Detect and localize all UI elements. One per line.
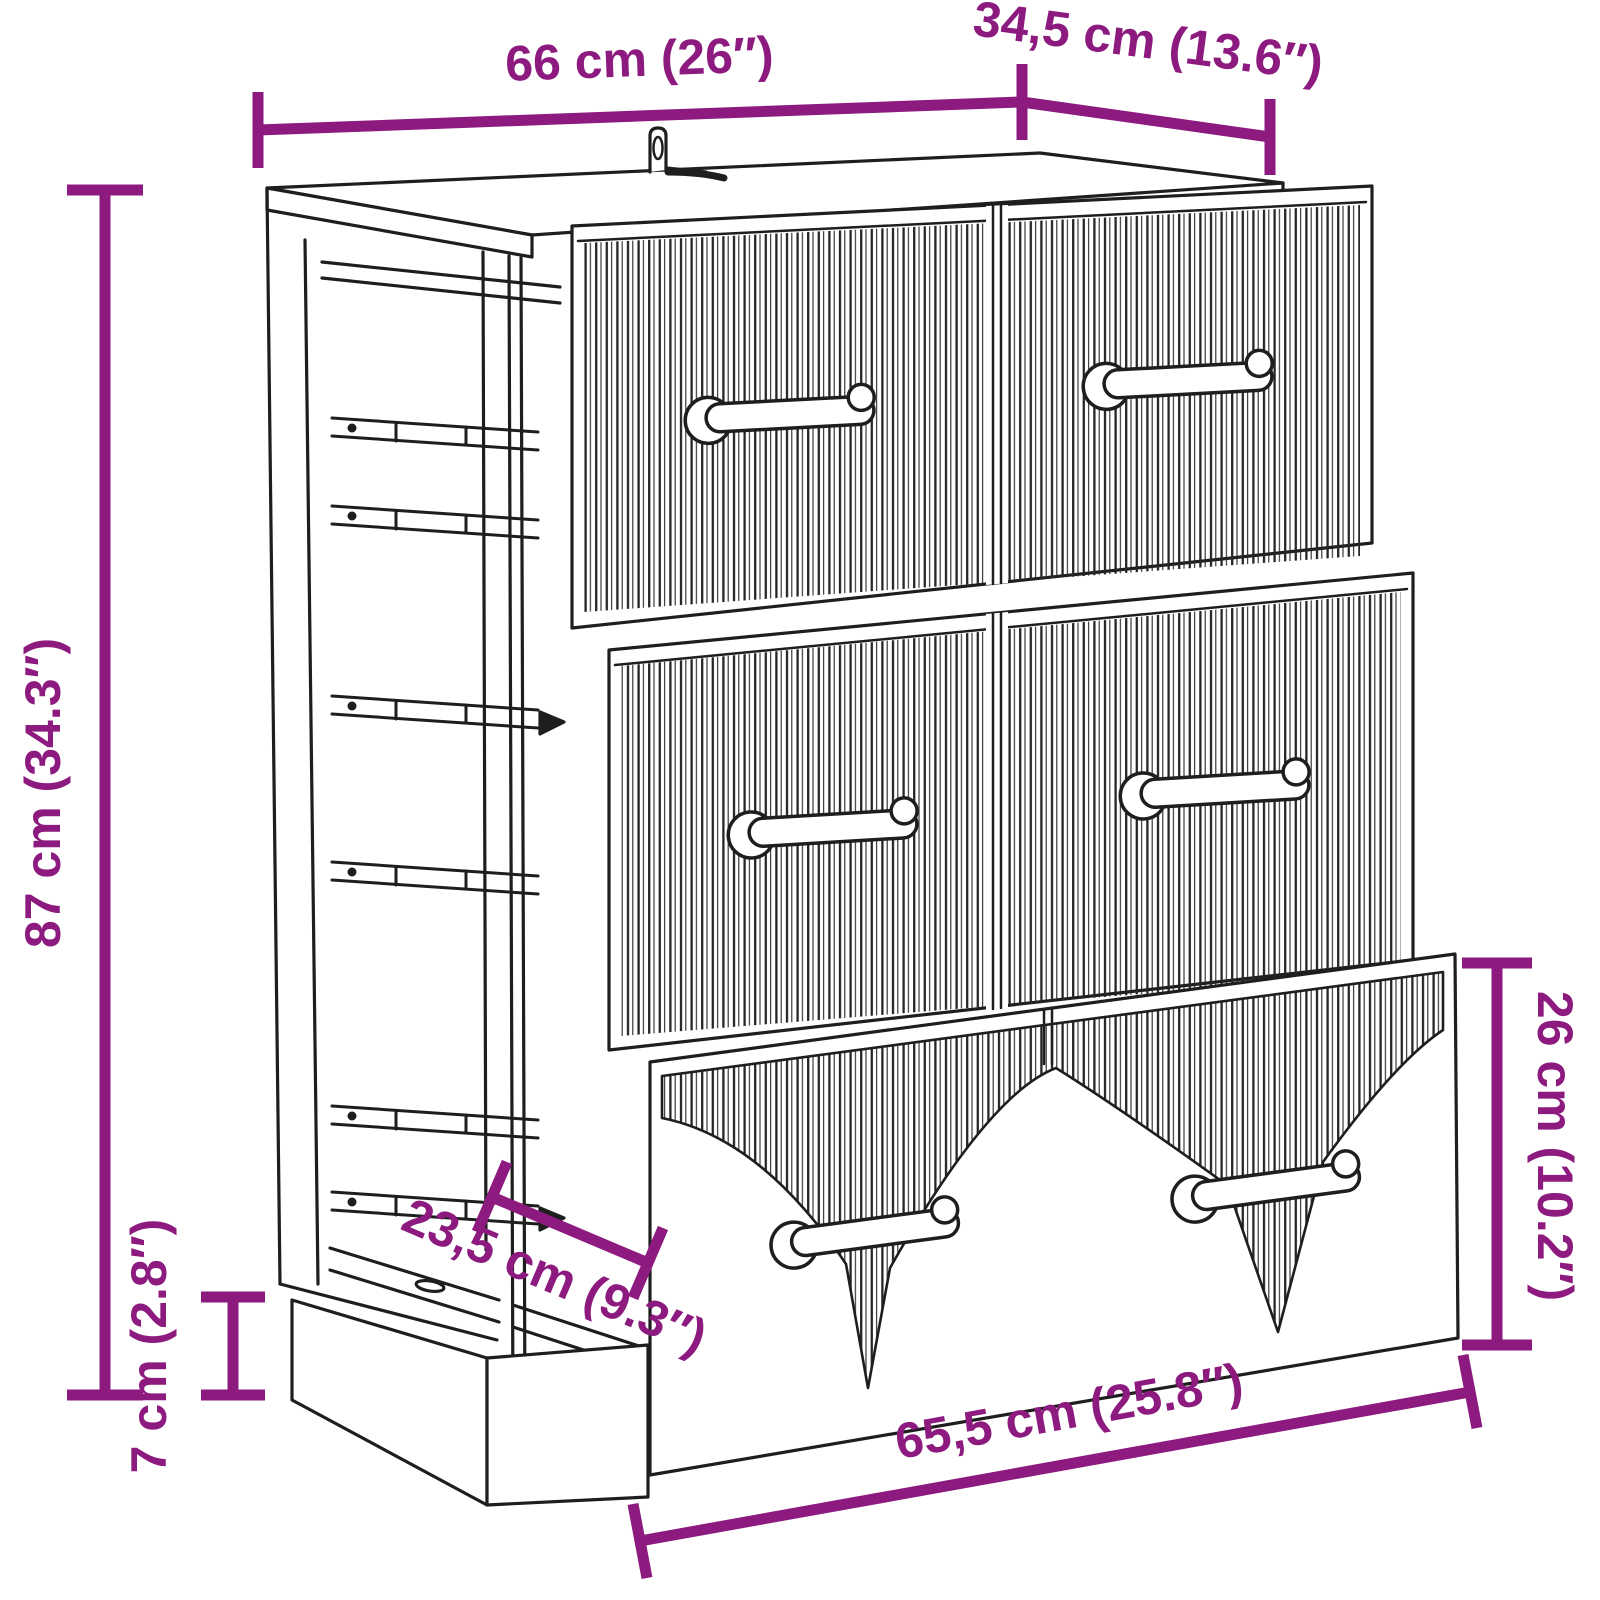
drawer-top	[572, 186, 1372, 628]
drawer-slide-rail	[332, 862, 538, 894]
dim-line	[258, 102, 1022, 130]
side-panel-front-edge	[305, 240, 318, 1284]
dimension-plinth-height	[201, 1297, 265, 1395]
dimension-drawer-height	[1462, 963, 1532, 1345]
drawer-slide-rail	[332, 696, 538, 728]
dim-line	[1022, 102, 1270, 137]
dim-cap	[1463, 1355, 1477, 1428]
drawer-top-seam	[986, 205, 1008, 585]
drawer-slide-rail	[332, 1106, 538, 1138]
interior-back-corner	[483, 252, 486, 1250]
rail-arrow-bracket	[540, 712, 564, 734]
product-dimension-diagram: 66 cm (26″) 34,5 cm (13.6″) 87 cm (34.3″…	[0, 0, 1600, 1600]
cabinet-drawing	[267, 128, 1458, 1505]
dim-plinth-height-label: 7 cm (2.8″)	[121, 1219, 177, 1474]
dim-cap	[633, 1504, 647, 1578]
drawer-middle-seam	[986, 612, 1008, 1010]
dim-top-width-label: 66 cm (26″)	[504, 26, 774, 92]
diagram-canvas: 66 cm (26″) 34,5 cm (13.6″) 87 cm (34.3″…	[0, 0, 1600, 1600]
dim-height-label: 87 cm (34.3″)	[15, 638, 71, 948]
plinth-front-face	[487, 1345, 648, 1505]
interior-top-shelf	[322, 262, 560, 303]
dim-drawer-height-label: 26 cm (10.2″)	[1527, 991, 1583, 1301]
drawer-slide-rail	[332, 418, 538, 450]
drawer-slide-rail	[332, 506, 538, 538]
dimension-height	[67, 190, 143, 1395]
side-panel-outer-edge	[267, 190, 280, 1284]
drawer-middle-flutes	[621, 592, 1401, 1036]
